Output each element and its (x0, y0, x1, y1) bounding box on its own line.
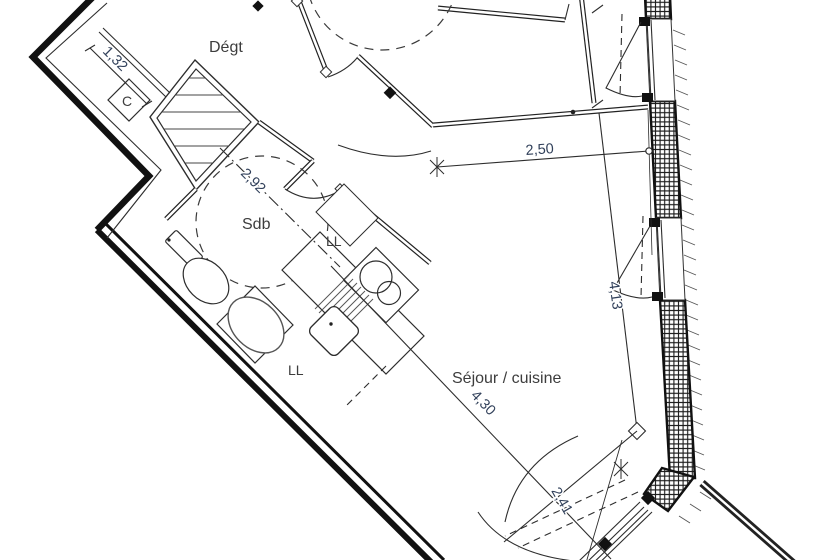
bathroom-fixtures (165, 230, 295, 364)
door-jamb-block (252, 0, 263, 11)
dimension-2-50 (430, 110, 652, 255)
room-label-sdb: Sdb (242, 216, 271, 233)
room-label-sejour: Séjour / cuisine (452, 370, 561, 387)
dim-label-4-13: 4,13 (605, 280, 625, 310)
floor-plan-drawing: Dégt C Sdb LL LL Séjour / cuisine 1,32 2… (0, 0, 840, 560)
dim-label-1-32: 1,32 (99, 44, 130, 75)
door-swing-arc (328, 58, 357, 77)
corner-pier-hatched (644, 468, 694, 511)
door-swing-arc (338, 145, 431, 156)
window-swing-dashed (620, 14, 622, 97)
appliance-label-ll-bottom: LL (288, 362, 304, 378)
wall-pier-hatched (660, 300, 695, 478)
wall-pier-hatched (645, 0, 671, 19)
turning-circle-degt (306, 0, 458, 50)
window-1 (606, 14, 675, 102)
window-swing-dashed (641, 216, 643, 298)
appliance-label-ll-top: LL (326, 233, 342, 249)
closet-label-c: C (122, 93, 132, 109)
star-marker (614, 459, 628, 479)
dim-label-2-50: 2,50 (525, 141, 554, 159)
window-swing-fan (606, 22, 642, 97)
balcony-divider (702, 483, 793, 560)
dim-label-2-41: 2,41 (547, 485, 575, 517)
dim-tick (592, 5, 603, 13)
floor-plan-canvas: Dégt C Sdb LL LL Séjour / cuisine 1,32 2… (0, 0, 840, 560)
node-marker (646, 148, 652, 154)
survey-node (571, 110, 576, 115)
right-facade (478, 0, 793, 560)
dimension-4-30 (331, 266, 611, 559)
room-label-degt: Dégt (209, 39, 243, 56)
dimension-2-41 (504, 431, 637, 542)
window-2 (613, 216, 685, 301)
wall-pier-hatched (650, 101, 681, 218)
